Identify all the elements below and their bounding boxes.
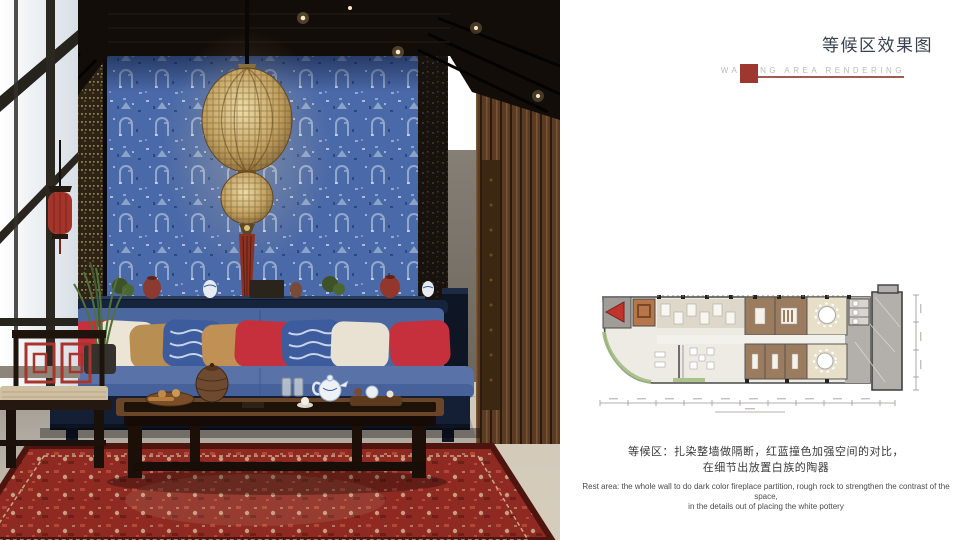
plan-annex <box>872 292 902 390</box>
accent-line <box>758 76 904 78</box>
plan-dimension-right <box>913 295 919 390</box>
plan-round-table-2 <box>817 353 833 369</box>
caption-zh-line2: 在细节出放置白族的陶器 <box>572 460 960 476</box>
plan-dimension-labels <box>609 398 870 409</box>
carved-wood-panel <box>482 160 500 410</box>
caption-en-line2: in the details out of placing the white … <box>572 502 960 512</box>
plan-restrooms <box>849 299 869 325</box>
plan-lift-room <box>633 299 655 326</box>
plan-table-chairs <box>781 308 797 324</box>
presentation-slide: 等候区效果图 WAITING AREA RENDERING <box>0 0 960 540</box>
plan-corridor <box>657 335 845 344</box>
page-title: 等候区效果图 <box>533 31 933 56</box>
floor-plan <box>595 282 925 417</box>
plan-dimension-right-labels <box>920 304 921 369</box>
page-subtitle: WAITING AREA RENDERING <box>505 66 905 75</box>
accent-square <box>740 64 758 83</box>
plan-round-table <box>819 307 836 324</box>
sofa-pillows <box>60 319 451 370</box>
waiting-area-photo <box>0 0 560 540</box>
plan-dimension-bottom <box>600 400 895 412</box>
caption-block: 等候区：扎染整墙做隔断，红蓝撞色加强空间的对比， 在细节出放置白族的陶器 Res… <box>572 444 960 512</box>
plan-table <box>755 308 765 324</box>
plan-green-strip <box>673 378 705 382</box>
plan-dining-room-top <box>745 297 807 335</box>
plan-annex-step <box>878 285 898 293</box>
waiting-area-photo-art <box>0 0 560 540</box>
floor-plan-art <box>595 282 925 417</box>
caption-zh-line1: 等候区：扎染整墙做隔断，红蓝撞色加强空间的对比， <box>572 444 960 460</box>
caption-en-line1: Rest area: the whole wall to do dark col… <box>572 482 960 502</box>
